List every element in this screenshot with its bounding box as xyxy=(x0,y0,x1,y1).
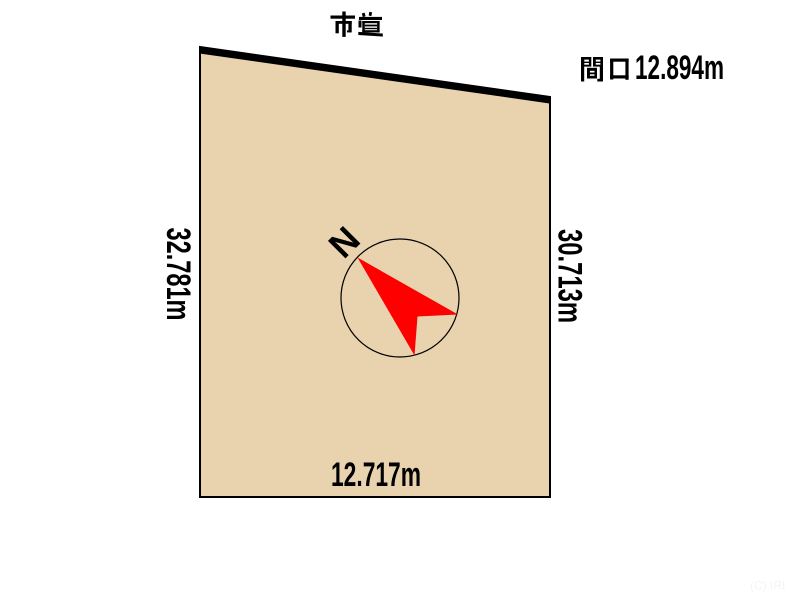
svg-text:(C) IRI: (C) IRI xyxy=(750,579,785,593)
svg-text:12.894m: 12.894m xyxy=(635,49,724,87)
svg-text:32.781m: 32.781m xyxy=(159,228,197,321)
svg-text:12.717m: 12.717m xyxy=(331,456,421,494)
svg-text:30.713m: 30.713m xyxy=(551,229,589,323)
